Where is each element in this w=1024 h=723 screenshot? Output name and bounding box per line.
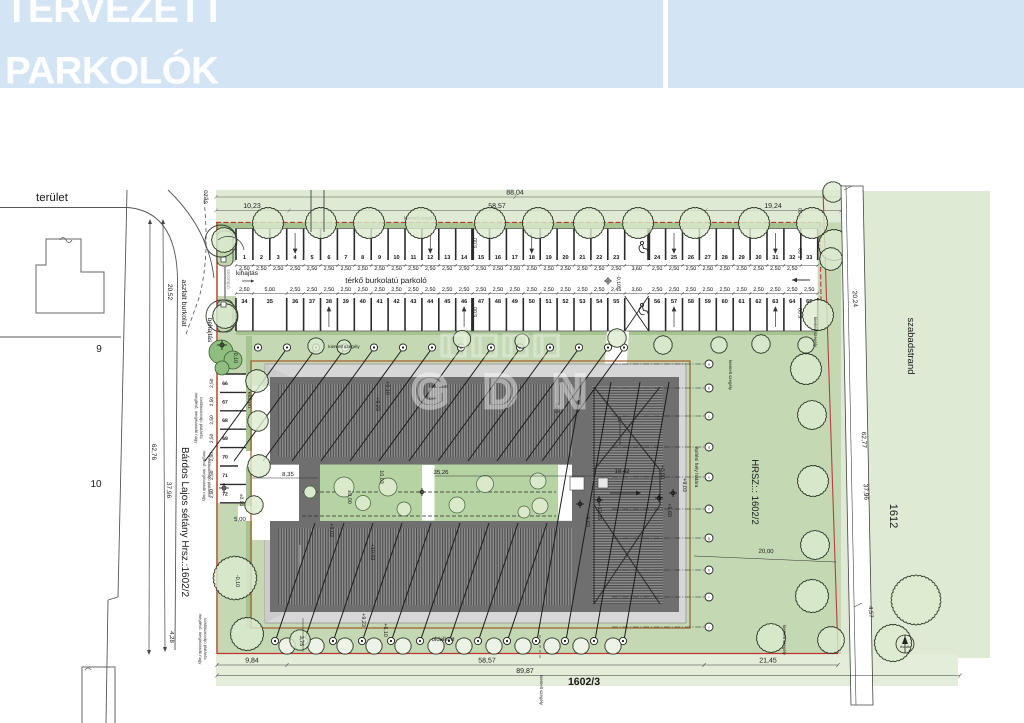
svg-text:41: 41	[376, 299, 382, 305]
svg-text:21: 21	[579, 255, 585, 261]
svg-text:20,00: 20,00	[758, 548, 774, 556]
svg-text:5,00: 5,00	[473, 238, 479, 248]
svg-text:7: 7	[344, 255, 347, 261]
svg-text:lombkoronájú platánfa: lombkoronájú platánfa	[199, 397, 204, 439]
svg-text:2,50: 2,50	[753, 266, 764, 272]
svg-text:észak: észak	[900, 645, 910, 649]
svg-text:2,50: 2,50	[408, 266, 419, 272]
svg-text:37,96: 37,96	[165, 482, 172, 499]
svg-text:18: 18	[529, 255, 535, 261]
svg-text:c: c	[708, 414, 710, 418]
svg-text:58,57: 58,57	[478, 658, 496, 665]
svg-text:56: 56	[654, 299, 660, 305]
svg-text:2,50: 2,50	[686, 266, 697, 272]
svg-text:2,50: 2,50	[209, 415, 215, 425]
svg-text:2,50: 2,50	[543, 287, 554, 293]
svg-text:2,50: 2,50	[209, 397, 215, 407]
svg-text:2,50: 2,50	[425, 287, 436, 293]
svg-text:+9,60: +9,60	[666, 503, 672, 517]
svg-text:88,04: 88,04	[506, 190, 524, 197]
svg-text:2,50: 2,50	[374, 287, 385, 293]
svg-text:2,50: 2,50	[442, 266, 453, 272]
svg-text:+6,10: +6,10	[384, 381, 390, 395]
svg-text:j: j	[708, 625, 710, 629]
svg-text:2,50: 2,50	[787, 266, 798, 272]
svg-text:28: 28	[722, 255, 728, 261]
svg-text:2,50: 2,50	[652, 287, 663, 293]
svg-text:ozás: ozás	[202, 190, 209, 204]
svg-text:-0,10: -0,10	[232, 351, 238, 363]
svg-text:lombkoronájú platánfa: lombkoronájú platánfa	[207, 455, 212, 497]
svg-text:2,50: 2,50	[273, 266, 284, 272]
svg-text:50: 50	[529, 299, 535, 305]
svg-text:2,50: 2,50	[669, 287, 680, 293]
svg-text:35: 35	[267, 299, 273, 305]
svg-text:34: 34	[241, 299, 248, 305]
svg-text:1612: 1612	[887, 504, 899, 528]
svg-text:kiemelt szegély: kiemelt szegély	[813, 317, 818, 348]
svg-text:2,50: 2,50	[526, 266, 537, 272]
svg-text:g: g	[708, 536, 710, 540]
svg-text:PARKOLÓK: PARKOLÓK	[5, 49, 219, 93]
svg-text:építési hely határa: építési hely határa	[693, 447, 699, 488]
svg-text:2,50: 2,50	[324, 287, 335, 293]
svg-text:43: 43	[410, 299, 416, 305]
svg-text:9,84: 9,84	[245, 658, 259, 665]
svg-text:2,50: 2,50	[686, 287, 697, 293]
svg-text:58: 58	[688, 299, 694, 305]
svg-text:61: 61	[738, 299, 744, 305]
svg-text:2,50: 2,50	[526, 287, 537, 293]
svg-text:19,24: 19,24	[764, 203, 782, 210]
svg-text:49: 49	[512, 299, 518, 305]
svg-text:2,50: 2,50	[543, 266, 554, 272]
svg-text:62,76: 62,76	[150, 444, 157, 461]
svg-text:2,50: 2,50	[209, 433, 215, 443]
svg-text:2,50: 2,50	[493, 266, 504, 272]
svg-text:2,50: 2,50	[290, 266, 301, 272]
svg-text:54: 54	[596, 299, 603, 305]
svg-text:22: 22	[596, 255, 602, 261]
svg-text:4,57: 4,57	[867, 606, 875, 619]
svg-text:13: 13	[444, 255, 450, 261]
svg-text:2,50: 2,50	[560, 287, 571, 293]
svg-text:40: 40	[360, 299, 366, 305]
svg-text:38: 38	[326, 299, 332, 305]
svg-text:72: 72	[222, 491, 228, 497]
svg-text:2,50: 2,50	[560, 266, 571, 272]
svg-text:6: 6	[327, 255, 330, 261]
svg-text:TERVEZETT: TERVEZETT	[5, 0, 225, 31]
svg-text:+12,25: +12,25	[596, 504, 602, 521]
svg-text:2,50: 2,50	[703, 287, 714, 293]
svg-text:f: f	[709, 507, 710, 511]
svg-text:2,50: 2,50	[357, 287, 368, 293]
svg-text:20,24: 20,24	[851, 291, 859, 308]
svg-text:2,50: 2,50	[669, 266, 680, 272]
svg-text:+9,03: +9,03	[681, 478, 687, 492]
svg-text:44: 44	[427, 299, 434, 305]
svg-text:3,60: 3,60	[631, 266, 642, 272]
svg-text:35,26: 35,26	[433, 469, 449, 476]
svg-text:11: 11	[410, 255, 416, 261]
svg-text:2,50: 2,50	[736, 266, 747, 272]
svg-text:2,50: 2,50	[374, 266, 385, 272]
svg-text:29: 29	[738, 255, 744, 261]
svg-text:9: 9	[96, 344, 102, 355]
svg-text:36: 36	[292, 299, 298, 305]
svg-text:21,45: 21,45	[759, 658, 777, 665]
svg-text:+10,03: +10,03	[369, 544, 375, 561]
svg-text:39: 39	[343, 299, 349, 305]
svg-text:2,50: 2,50	[719, 287, 730, 293]
svg-text:2,45: 2,45	[611, 287, 622, 293]
svg-text:térkő burkolatú parkoló: térkő burkolatú parkoló	[345, 276, 427, 285]
svg-text:4,28: 4,28	[168, 631, 175, 643]
svg-text:66: 66	[222, 381, 228, 387]
svg-text:a: a	[708, 362, 710, 366]
svg-text:57: 57	[671, 299, 677, 305]
svg-text:15: 15	[478, 255, 484, 261]
svg-text:kiemelt szegély: kiemelt szegély	[328, 344, 360, 349]
svg-text:9: 9	[378, 255, 381, 261]
svg-text:+6,10: +6,10	[382, 623, 388, 637]
svg-text:2,50: 2,50	[787, 287, 798, 293]
svg-text:2,50: 2,50	[594, 266, 605, 272]
svg-text:aszfalt burkolat: aszfalt burkolat	[180, 279, 188, 326]
svg-text:3: 3	[277, 255, 280, 261]
svg-text:42: 42	[393, 299, 399, 305]
svg-text:2,50: 2,50	[391, 266, 402, 272]
svg-text:17: 17	[512, 255, 518, 261]
svg-text:2,50: 2,50	[307, 287, 318, 293]
svg-text:meglévő, megmaradó nagy: meglévő, megmaradó nagy	[194, 393, 199, 445]
svg-text:behajtás: behajtás	[206, 318, 213, 343]
svg-text:2,50: 2,50	[239, 287, 250, 293]
svg-text:10,23: 10,23	[243, 203, 261, 210]
svg-text:meglévő, megmaradó nagy: meglévő, megmaradó nagy	[198, 614, 203, 666]
svg-text:51: 51	[545, 299, 551, 305]
svg-text:37,96: 37,96	[862, 484, 870, 501]
svg-text:2,50: 2,50	[209, 378, 215, 388]
svg-text:68: 68	[222, 418, 228, 424]
svg-text:5,00: 5,00	[473, 307, 479, 317]
svg-text:62: 62	[755, 299, 761, 305]
svg-text:19: 19	[545, 255, 551, 261]
svg-text:89,87: 89,87	[516, 668, 534, 675]
svg-text:-0,10: -0,10	[615, 275, 621, 287]
svg-text:2,50: 2,50	[341, 287, 352, 293]
svg-text:2,50: 2,50	[577, 287, 588, 293]
svg-text:64: 64	[789, 299, 796, 305]
svg-text:2,50: 2,50	[611, 266, 622, 272]
svg-text:2,50: 2,50	[804, 287, 815, 293]
svg-text:63: 63	[772, 299, 778, 305]
svg-text:47: 47	[478, 299, 484, 305]
svg-text:16: 16	[495, 255, 501, 261]
svg-text:69: 69	[222, 436, 228, 442]
svg-text:2,50: 2,50	[341, 266, 352, 272]
svg-text:kiemelt szegély: kiemelt szegély	[782, 625, 787, 656]
svg-text:+9,23: +9,23	[360, 613, 366, 627]
svg-text:26: 26	[688, 255, 694, 261]
svg-text:2,50: 2,50	[391, 287, 402, 293]
svg-text:2,50: 2,50	[510, 266, 521, 272]
svg-text:62,77: 62,77	[860, 432, 868, 449]
svg-text:±0,00: ±0,00	[346, 490, 352, 503]
svg-text:2,50: 2,50	[459, 287, 470, 293]
svg-text:lombkoronájú platánfa: lombkoronájú platánfa	[203, 618, 208, 660]
svg-text:12: 12	[427, 255, 433, 261]
svg-text:+9,03: +9,03	[328, 523, 334, 537]
svg-text:20: 20	[562, 255, 568, 261]
svg-text:55: 55	[613, 299, 619, 305]
svg-text:2,50: 2,50	[425, 266, 436, 272]
svg-text:HRSZ:.: 1602/2: HRSZ:.: 1602/2	[749, 459, 760, 524]
svg-text:kihajtás: kihajtás	[236, 270, 259, 277]
svg-text:45: 45	[444, 299, 450, 305]
svg-text:2,50: 2,50	[324, 266, 335, 272]
svg-text:23: 23	[613, 255, 619, 261]
svg-text:d: d	[708, 445, 710, 449]
svg-text:sorompó: sorompó	[225, 269, 231, 289]
svg-text:32: 32	[789, 255, 795, 261]
svg-text:31: 31	[772, 255, 778, 261]
svg-text:18,42: 18,42	[614, 468, 630, 475]
svg-text:kiemelt szegély: kiemelt szegély	[539, 675, 544, 706]
svg-text:2,50: 2,50	[770, 287, 781, 293]
svg-text:1602/3: 1602/3	[568, 676, 600, 688]
svg-text:2,50: 2,50	[594, 287, 605, 293]
svg-text:70: 70	[222, 455, 228, 461]
svg-text:e: e	[708, 475, 710, 479]
svg-text:59: 59	[705, 299, 711, 305]
svg-text:meglévő, megmaradó nagy: meglévő, megmaradó nagy	[202, 451, 207, 503]
svg-text:10: 10	[90, 479, 102, 490]
svg-text:37: 37	[309, 299, 315, 305]
svg-text:10: 10	[393, 255, 399, 261]
svg-text:2,50: 2,50	[753, 287, 764, 293]
svg-text:2,50: 2,50	[652, 266, 663, 272]
svg-text:szabadstrand: szabadstrand	[905, 317, 916, 374]
svg-text:oldalkert: oldalkert	[432, 636, 455, 643]
svg-text:2,50: 2,50	[770, 266, 781, 272]
svg-text:5: 5	[310, 255, 313, 261]
svg-text:2,50: 2,50	[736, 287, 747, 293]
svg-text:67: 67	[222, 399, 228, 405]
svg-text:48: 48	[495, 299, 501, 305]
svg-text:5,00: 5,00	[798, 248, 804, 258]
svg-text:25: 25	[671, 255, 677, 261]
svg-text:60: 60	[722, 299, 728, 305]
svg-text:24: 24	[654, 255, 661, 261]
svg-text:8: 8	[361, 255, 364, 261]
svg-text:1: 1	[243, 255, 246, 261]
svg-text:20,52: 20,52	[166, 284, 173, 301]
svg-text:2,50: 2,50	[357, 266, 368, 272]
svg-text:GDN: GDN	[412, 365, 622, 417]
svg-text:10,03: 10,03	[378, 470, 384, 484]
svg-text:3,60: 3,60	[631, 287, 642, 293]
svg-text:5,00: 5,00	[234, 516, 246, 523]
svg-text:2,50: 2,50	[719, 266, 730, 272]
svg-text:2,50: 2,50	[476, 266, 487, 272]
svg-text:2,50: 2,50	[290, 287, 301, 293]
svg-text:30: 30	[755, 255, 761, 261]
svg-text:2,50: 2,50	[442, 287, 453, 293]
svg-text:52: 52	[562, 299, 568, 305]
svg-text:-0,10: -0,10	[234, 575, 240, 587]
svg-text:b: b	[708, 386, 710, 390]
svg-text:2,50: 2,50	[493, 287, 504, 293]
svg-text:h: h	[708, 568, 710, 572]
svg-text:33: 33	[806, 255, 812, 261]
svg-text:2,50: 2,50	[408, 287, 419, 293]
svg-text:2,50: 2,50	[476, 287, 487, 293]
svg-text:27: 27	[705, 255, 711, 261]
svg-text:46: 46	[461, 299, 467, 305]
svg-text:terület: terület	[36, 192, 69, 204]
svg-text:71: 71	[222, 473, 228, 479]
svg-text:2,50: 2,50	[307, 266, 318, 272]
svg-text:14: 14	[461, 255, 468, 261]
svg-text:2,50: 2,50	[459, 266, 470, 272]
svg-text:kiemelt szegély: kiemelt szegély	[728, 360, 733, 391]
svg-text:2,50: 2,50	[703, 266, 714, 272]
svg-text:2,50: 2,50	[510, 287, 521, 293]
svg-text:8,35: 8,35	[282, 471, 294, 478]
svg-text:53: 53	[579, 299, 585, 305]
svg-text:5,00: 5,00	[265, 287, 276, 293]
svg-text:2,50: 2,50	[577, 266, 588, 272]
svg-text:±0,00: ±0,00	[238, 494, 244, 507]
svg-text:2: 2	[260, 255, 263, 261]
svg-text:Bárdos Lajos sétány Hrsz.:1602: Bárdos Lajos sétány Hrsz.:1602/2	[179, 447, 190, 598]
svg-text:+9,23: +9,23	[374, 397, 380, 411]
